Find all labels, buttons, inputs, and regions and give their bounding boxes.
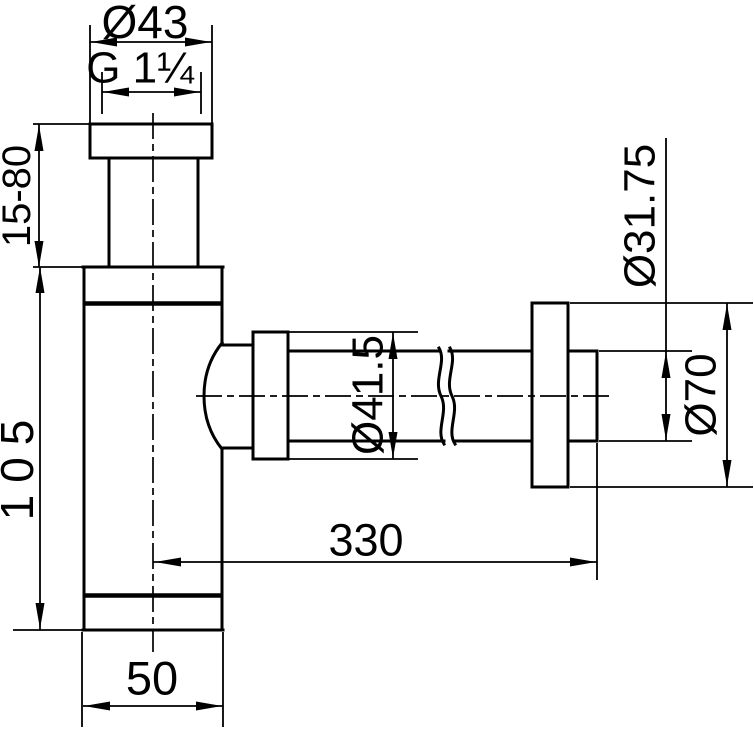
arrow-down-icon (723, 460, 732, 486)
arrow-right-icon (196, 702, 222, 711)
arrow-up-icon (723, 304, 732, 330)
label-outlet-pipe-length: 330 (328, 515, 403, 566)
label-wall-flange-diameter: Ø70 (677, 353, 726, 436)
label-inlet-thread: G 1¼ (86, 44, 195, 93)
arrow-left-icon (155, 558, 181, 567)
arrow-right-icon (570, 558, 596, 567)
label-inlet-nut-diameter: Ø43 (102, 0, 189, 48)
label-body-height: 105 (0, 408, 43, 521)
technical-drawing-canvas: Ø43 G 1¼ 15-80 105 Ø41.5 Ø31.75 Ø70 330 … (0, 0, 754, 732)
wall-flange-outline (532, 303, 568, 487)
label-wall-pipe-diameter: Ø31.75 (616, 144, 665, 288)
label-body-width: 50 (126, 652, 178, 705)
arrow-up-icon (662, 352, 671, 378)
label-outlet-nut-diameter: Ø41.5 (344, 335, 393, 455)
arrow-down-icon (662, 414, 671, 440)
arrow-up-icon (36, 267, 45, 293)
inlet-nut-outline (90, 124, 212, 158)
arrow-left-icon (84, 702, 110, 711)
label-inlet-adjustable-height: 15-80 (0, 145, 39, 247)
dimension-labels: Ø43 G 1¼ 15-80 105 Ø41.5 Ø31.75 Ø70 330 … (0, 0, 726, 705)
arrow-down-icon (36, 603, 45, 629)
bottle-trap-drawing: Ø43 G 1¼ 15-80 105 Ø41.5 Ø31.75 Ø70 330 … (0, 0, 754, 732)
